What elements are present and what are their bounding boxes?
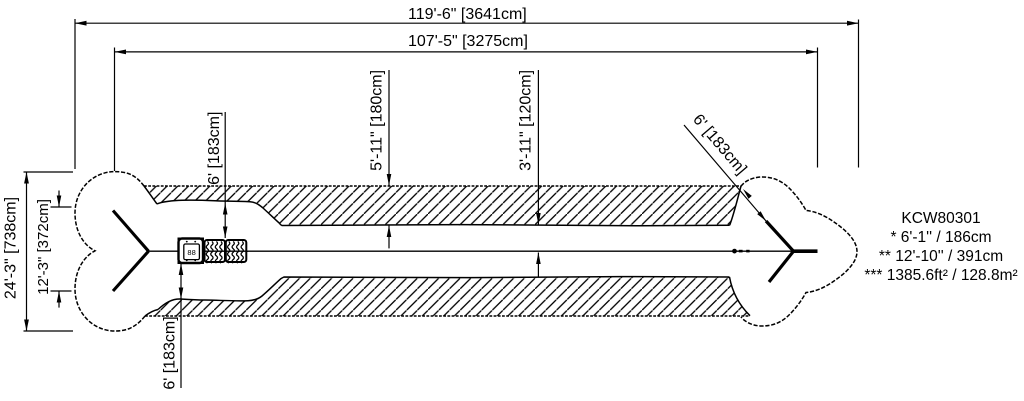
svg-text:88: 88 bbox=[187, 248, 195, 257]
svg-text:** 12'-10'' / 391cm: ** 12'-10'' / 391cm bbox=[879, 248, 1003, 265]
svg-text:6' [183cm]: 6' [183cm] bbox=[689, 111, 750, 178]
svg-text:* 6'-1'' / 186cm: * 6'-1'' / 186cm bbox=[890, 229, 991, 246]
svg-text:12'-3" [372cm]: 12'-3" [372cm] bbox=[35, 199, 52, 295]
svg-text:KCW80301: KCW80301 bbox=[901, 210, 980, 227]
svg-text:5'-11" [180cm]: 5'-11" [180cm] bbox=[369, 70, 386, 171]
svg-text:6' [183cm]: 6' [183cm] bbox=[206, 112, 223, 185]
svg-text:6' [183cm]: 6' [183cm] bbox=[162, 316, 179, 389]
svg-text:119'-6" [3641cm]: 119'-6" [3641cm] bbox=[408, 6, 527, 23]
svg-text:107'-5" [3275cm]: 107'-5" [3275cm] bbox=[408, 33, 528, 50]
svg-text:*** 1385.6ft² / 128.8m²: *** 1385.6ft² / 128.8m² bbox=[864, 267, 1017, 284]
svg-text:3'-11" [120cm]: 3'-11" [120cm] bbox=[518, 70, 535, 171]
svg-text:24'-3" [738cm]: 24'-3" [738cm] bbox=[3, 197, 20, 299]
